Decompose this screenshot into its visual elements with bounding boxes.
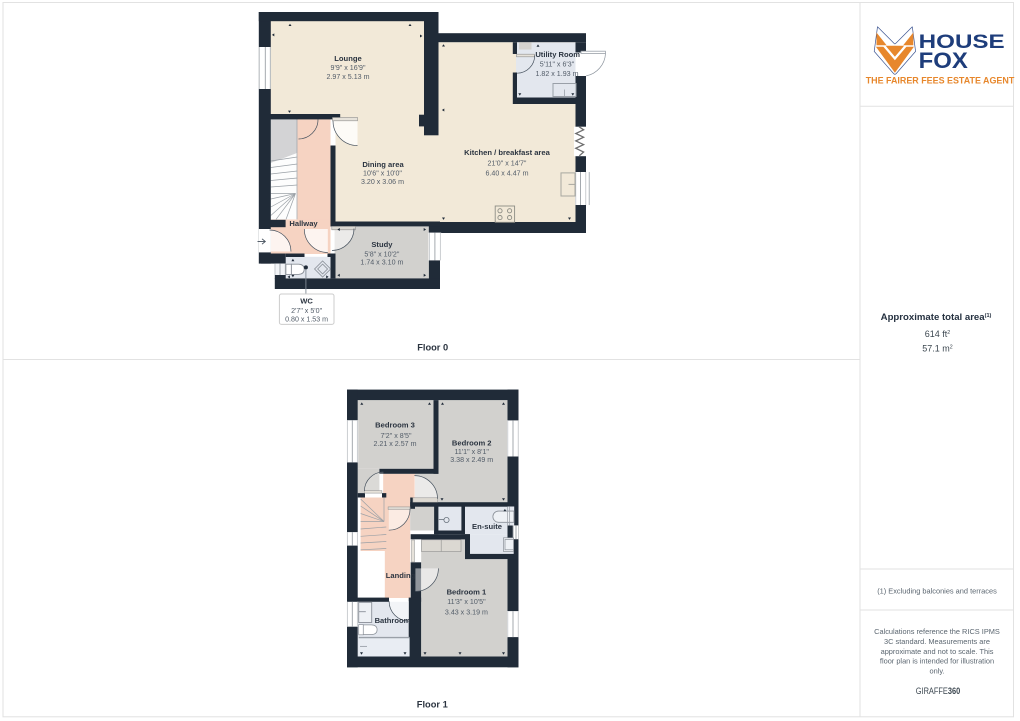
svg-text:57.1 m2: 57.1 m2 [922, 343, 953, 353]
svg-text:0.80 x 1.53 m: 0.80 x 1.53 m [285, 315, 328, 323]
svg-text:3C standard. Measurements are: 3C standard. Measurements are [884, 637, 990, 646]
svg-text:5'11" x 6'3": 5'11" x 6'3" [540, 61, 575, 69]
svg-text:THE FAIRER FEES ESTATE AGENT: THE FAIRER FEES ESTATE AGENT [866, 76, 1015, 86]
svg-text:Bathroom: Bathroom [375, 616, 411, 625]
svg-text:Calculations reference the RIC: Calculations reference the RICS IPMS [874, 627, 1000, 636]
svg-text:2'7" x 5'0": 2'7" x 5'0" [291, 307, 322, 315]
svg-text:1.74 x 3.10 m: 1.74 x 3.10 m [360, 259, 403, 267]
svg-text:2.97 x 5.13 m: 2.97 x 5.13 m [327, 73, 370, 81]
svg-text:Floor 0: Floor 0 [417, 343, 448, 353]
svg-text:Bedroom 2: Bedroom 2 [452, 438, 492, 447]
svg-text:Bedroom 3: Bedroom 3 [375, 420, 415, 429]
svg-text:3.20 x 3.06 m: 3.20 x 3.06 m [361, 178, 404, 186]
svg-text:3.38 x 2.49 m: 3.38 x 2.49 m [450, 456, 493, 464]
svg-text:Utility Room: Utility Room [535, 50, 580, 59]
svg-text:only.: only. [929, 667, 944, 676]
svg-text:Approximate total area(1): Approximate total area(1) [881, 312, 992, 323]
svg-text:Floor 1: Floor 1 [417, 700, 448, 710]
svg-text:floor plan is intended for ill: floor plan is intended for illustration [880, 657, 994, 666]
svg-text:Study: Study [371, 240, 393, 249]
svg-text:10'6" x 10'0": 10'6" x 10'0" [363, 170, 402, 178]
svg-text:Bedroom 1: Bedroom 1 [447, 587, 487, 596]
svg-text:11'1" x 8'1": 11'1" x 8'1" [454, 448, 489, 456]
svg-text:Hallway: Hallway [289, 219, 318, 228]
svg-text:5'8" x 10'2": 5'8" x 10'2" [364, 251, 399, 259]
svg-text:3.43 x 3.19 m: 3.43 x 3.19 m [445, 608, 488, 616]
svg-text:Kitchen / breakfast area: Kitchen / breakfast area [464, 148, 550, 157]
svg-text:1.82 x 1.93 m: 1.82 x 1.93 m [536, 70, 579, 78]
svg-text:21'0" x 14'7": 21'0" x 14'7" [488, 159, 527, 167]
svg-text:approximate and not to scale.: approximate and not to scale. This [881, 647, 994, 656]
svg-text:7'2" x 8'5": 7'2" x 8'5" [380, 432, 411, 440]
svg-text:FOX: FOX [919, 48, 968, 73]
svg-text:En-suite: En-suite [472, 522, 502, 531]
svg-text:6.40 x 4.47 m: 6.40 x 4.47 m [486, 170, 529, 178]
svg-text:Lounge: Lounge [334, 54, 361, 63]
svg-text:9'9" x 16'9": 9'9" x 16'9" [331, 64, 366, 72]
svg-text:614 ft2: 614 ft2 [925, 329, 951, 339]
svg-text:11'3" x 10'5": 11'3" x 10'5" [447, 598, 486, 606]
svg-text:GIRAFFE360: GIRAFFE360 [916, 686, 961, 696]
svg-text:(1) Excluding balconies and te: (1) Excluding balconies and terraces [877, 587, 997, 596]
svg-text:WC: WC [300, 297, 313, 306]
svg-text:Landing: Landing [386, 571, 416, 580]
svg-text:Dining area: Dining area [362, 160, 404, 169]
svg-text:2.21 x 2.57 m: 2.21 x 2.57 m [374, 440, 417, 448]
